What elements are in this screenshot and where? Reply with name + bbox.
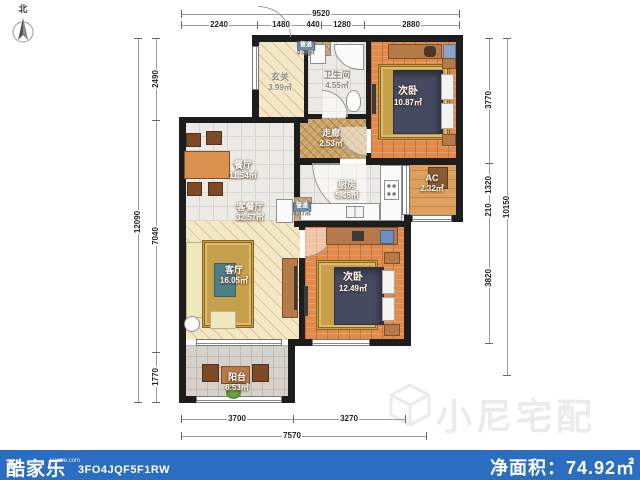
room-label-entry: 玄关3.99㎡: [268, 72, 292, 92]
dim-tick: [134, 402, 142, 403]
dim-bottom-seg-0: 3700: [227, 415, 247, 423]
dim-top-seg-2: 440: [305, 21, 320, 29]
dim-tick: [364, 21, 365, 29]
window-kitchen-ac: [402, 165, 410, 215]
net-area: 净面积：74.92㎡: [490, 454, 635, 480]
room-label-corridor: 走廊2.53㎡: [319, 128, 343, 148]
tv: [304, 286, 308, 316]
brand-domain: kujiale.com: [50, 458, 80, 464]
laptop: [352, 231, 364, 241]
room-label-ac: AC2.32㎡: [420, 173, 444, 193]
balcony-chair: [202, 364, 219, 382]
net-area-value: 74.92㎡: [566, 458, 635, 478]
wall-bath-corridor-b: [346, 114, 368, 119]
dim-tick: [503, 38, 511, 39]
dim-tick: [485, 343, 493, 344]
desk-chair: [380, 230, 394, 244]
footer-bar: 酷家乐 kujiale.com 3FO4JQF5F1RW 净面积：74.92㎡: [0, 450, 640, 480]
room-label-bathroom: 卫生间4.55㎡: [323, 70, 350, 90]
dim-tick: [152, 38, 160, 39]
dim-tick: [152, 120, 160, 121]
dining-chair: [186, 133, 201, 147]
balcony-chair: [252, 364, 269, 382]
kitchen-sink: [346, 206, 364, 218]
room-label-duct-top: 管道0.07㎡: [297, 41, 315, 56]
dim-top-total: 9520: [311, 10, 331, 18]
dim-tick: [152, 402, 160, 403]
stove: [384, 180, 399, 200]
wall-dining-corridor: [294, 117, 300, 197]
wall-bath-corridor-a: [304, 114, 322, 119]
dim-top-seg-3: 1280: [332, 21, 352, 29]
window-balcony-bottom: [196, 396, 282, 403]
dining-chair: [206, 131, 222, 145]
dim-tick: [293, 415, 294, 423]
dining-chair: [187, 182, 202, 196]
room-label-living-dining: 客餐厅32.57㎡: [236, 202, 264, 222]
room-label-living: 客厅16.05㎡: [220, 265, 248, 285]
dim-left-seg-0: 2490: [152, 69, 160, 89]
dim-tick: [459, 10, 460, 18]
dim-top-seg-1: 1480: [271, 21, 291, 29]
pillow: [382, 270, 395, 294]
dim-tick: [181, 10, 182, 18]
dining-chair: [208, 182, 223, 196]
dim-tick: [181, 415, 182, 423]
dim-tick: [152, 352, 160, 353]
watermark-text: 小尼宅配: [436, 388, 596, 440]
dim-tick: [257, 21, 258, 29]
dim-left-seg-1: 7040: [152, 226, 160, 246]
wall-balcony-right: [288, 339, 295, 403]
dining-table: [184, 151, 230, 179]
dim-tick: [503, 375, 511, 376]
armchair: [210, 311, 236, 329]
dim-top-seg-0: 2240: [209, 21, 229, 29]
plan-code: 3FO4JQF5F1RW: [78, 464, 170, 476]
dim-right-seg-0: 3770: [485, 90, 493, 110]
pillow: [441, 74, 454, 100]
toilet: [346, 90, 361, 112]
room-label-balcony: 阳台6.53㎡: [225, 372, 249, 392]
dim-right-seg-2: 210: [485, 202, 493, 217]
tv: [294, 266, 297, 310]
room-label-bedroom-top: 次卧10.87㎡: [394, 86, 422, 108]
wall-bath-right: [366, 35, 371, 123]
window-entry-left: [252, 46, 259, 90]
dim-tick: [321, 21, 322, 29]
wall-ac-bottom-right: [452, 215, 463, 222]
compass-needle-icon: [8, 15, 38, 45]
wall-right-lower: [404, 215, 411, 346]
dim-left-seg-2: 1770: [152, 367, 160, 387]
nightstand: [442, 134, 456, 146]
pillow: [382, 297, 395, 321]
dim-tick: [181, 432, 182, 440]
slider-living-balcony: [196, 339, 282, 346]
dim-tick: [181, 21, 182, 29]
dim-line-bottom-total: [181, 436, 426, 437]
dim-right-seg-3: 3820: [485, 268, 493, 288]
dim-right-seg-1: 1320: [485, 175, 493, 195]
room-label-bedroom-bottom: 次卧12.49㎡: [339, 272, 367, 294]
pillow: [441, 103, 454, 129]
wall-bed2-bottom: [366, 158, 463, 165]
dim-bottom-seg-1: 3270: [339, 415, 359, 423]
room-label-dining: 餐厅11.54㎡: [229, 160, 257, 180]
wall-right-upper: [456, 35, 463, 222]
room-label-kitchen: 厨房5.45㎡: [335, 180, 359, 200]
kitchen-counter-bottom: [300, 203, 380, 221]
window-bed3-bottom: [312, 339, 370, 346]
dim-top-seg-4: 2880: [401, 21, 421, 29]
desk-chair: [424, 46, 436, 57]
dim-tick: [405, 415, 406, 423]
floorplan-screenshot: 小尼宅配 北: [0, 0, 640, 480]
tv: [372, 84, 376, 114]
net-area-label: 净面积：: [490, 458, 566, 478]
nightstand: [384, 324, 400, 336]
dim-line-left-seg: [156, 38, 157, 403]
compass: 北: [8, 2, 38, 42]
nightstand: [442, 58, 456, 69]
dim-tick: [485, 38, 493, 39]
compass-north-label: 北: [8, 2, 38, 15]
dim-right-total: 10150: [503, 195, 511, 219]
side-table: [184, 316, 200, 332]
watermark-cube-icon: [388, 383, 432, 427]
dim-left-total: 12090: [134, 210, 142, 234]
dim-tick: [485, 163, 493, 164]
dim-bottom-total: 7570: [282, 432, 302, 440]
room-label-duct-mid: 管道0.07㎡: [293, 202, 311, 217]
dim-tick: [459, 21, 460, 29]
dim-tick: [134, 38, 142, 39]
dim-tick: [426, 432, 427, 440]
nightstand: [384, 252, 400, 264]
window-ac-bottom: [412, 215, 452, 222]
wall-topleft-ledge: [179, 117, 260, 123]
fridge: [276, 199, 293, 223]
